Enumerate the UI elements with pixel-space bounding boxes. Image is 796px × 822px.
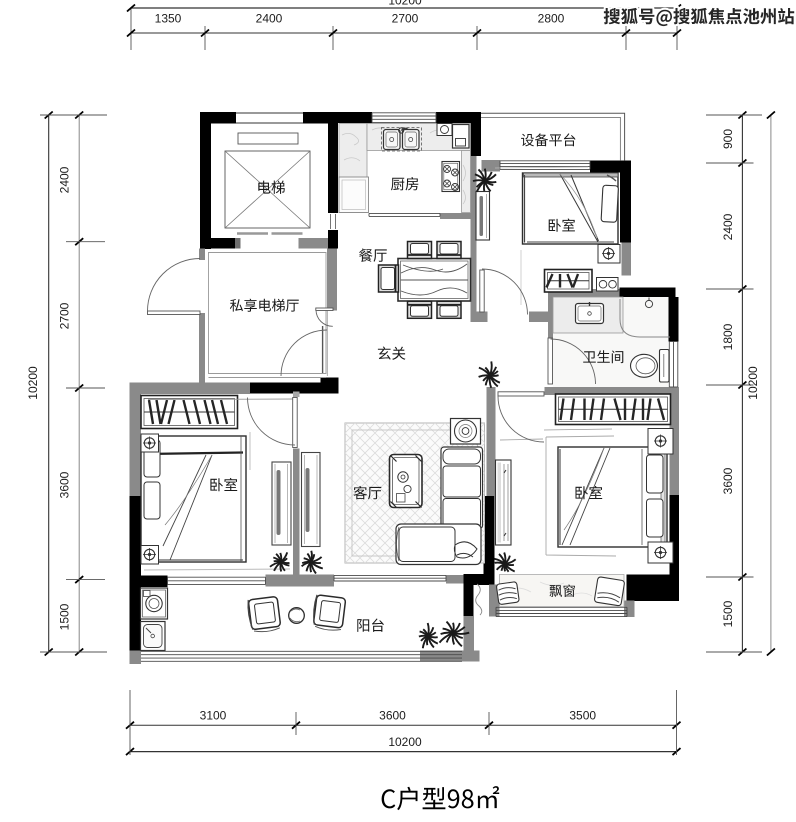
svg-text:1500: 1500 (721, 600, 735, 627)
svg-text:3600: 3600 (721, 467, 735, 494)
svg-text:3100: 3100 (200, 709, 227, 723)
svg-text:3500: 3500 (569, 709, 596, 723)
svg-text:3600: 3600 (379, 709, 406, 723)
svg-text:3600: 3600 (58, 471, 72, 498)
svg-text:2700: 2700 (58, 302, 72, 329)
svg-text:1500: 1500 (58, 603, 72, 630)
svg-text:2400: 2400 (721, 213, 735, 240)
svg-text:1350: 1350 (155, 12, 182, 26)
svg-text:10200: 10200 (746, 366, 760, 400)
svg-text:2800: 2800 (538, 12, 565, 26)
svg-text:2700: 2700 (392, 12, 419, 26)
svg-text:1800: 1800 (721, 323, 735, 350)
svg-text:10200: 10200 (26, 366, 40, 400)
svg-text:2400: 2400 (58, 166, 72, 193)
svg-text:10200: 10200 (388, 0, 422, 8)
svg-text:10200: 10200 (388, 735, 422, 749)
svg-text:900: 900 (721, 129, 735, 149)
svg-text:2400: 2400 (256, 12, 283, 26)
